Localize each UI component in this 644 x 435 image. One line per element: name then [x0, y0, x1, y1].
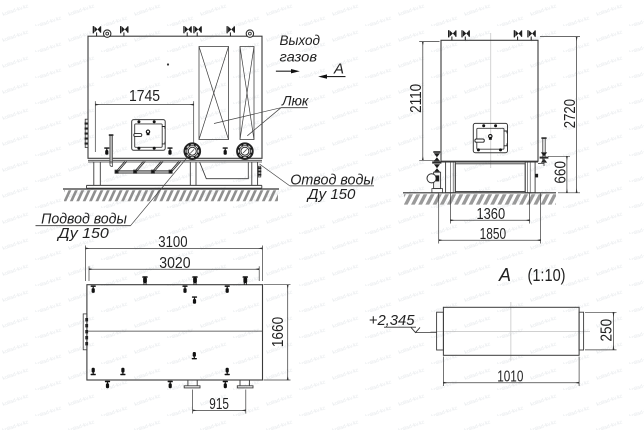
svg-text:3100: 3100 [158, 234, 187, 251]
svg-text:1010: 1010 [497, 368, 523, 385]
svg-text:1745: 1745 [129, 88, 160, 105]
svg-text:660: 660 [552, 161, 569, 184]
svg-text:A: A [333, 60, 344, 77]
svg-text:Люк: Люк [281, 93, 310, 109]
svg-text:2720: 2720 [562, 99, 579, 128]
svg-text:915: 915 [209, 396, 229, 413]
svg-text:1850: 1850 [480, 226, 507, 243]
svg-text:+2,345: +2,345 [369, 312, 415, 329]
svg-text:(1:10): (1:10) [528, 265, 566, 285]
svg-text:250: 250 [599, 319, 616, 342]
svg-text:A: A [498, 265, 511, 285]
svg-text:1660: 1660 [270, 317, 287, 347]
svg-text:Выход: Выход [280, 32, 321, 48]
svg-text:газов: газов [280, 49, 318, 65]
svg-text:Ду 150: Ду 150 [306, 186, 356, 203]
svg-text:Ду 150: Ду 150 [56, 225, 109, 242]
svg-text:2110: 2110 [408, 84, 425, 113]
svg-text:3020: 3020 [159, 255, 190, 272]
svg-text:1360: 1360 [476, 206, 505, 223]
